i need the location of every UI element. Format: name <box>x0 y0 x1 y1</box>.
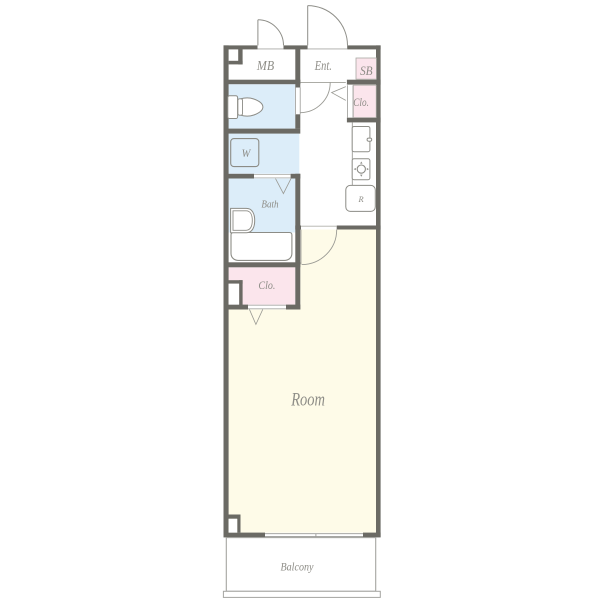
svg-text:W: W <box>242 148 252 160</box>
svg-text:Clo.: Clo. <box>258 278 275 292</box>
svg-text:Bath: Bath <box>261 200 278 211</box>
svg-text:Balcony: Balcony <box>281 560 315 574</box>
svg-text:Room: Room <box>290 390 325 411</box>
svg-text:SB: SB <box>360 64 373 78</box>
svg-text:R: R <box>357 195 363 204</box>
svg-text:MB: MB <box>256 59 274 74</box>
svg-text:Clo.: Clo. <box>353 96 369 109</box>
svg-text:Ent.: Ent. <box>314 58 332 73</box>
